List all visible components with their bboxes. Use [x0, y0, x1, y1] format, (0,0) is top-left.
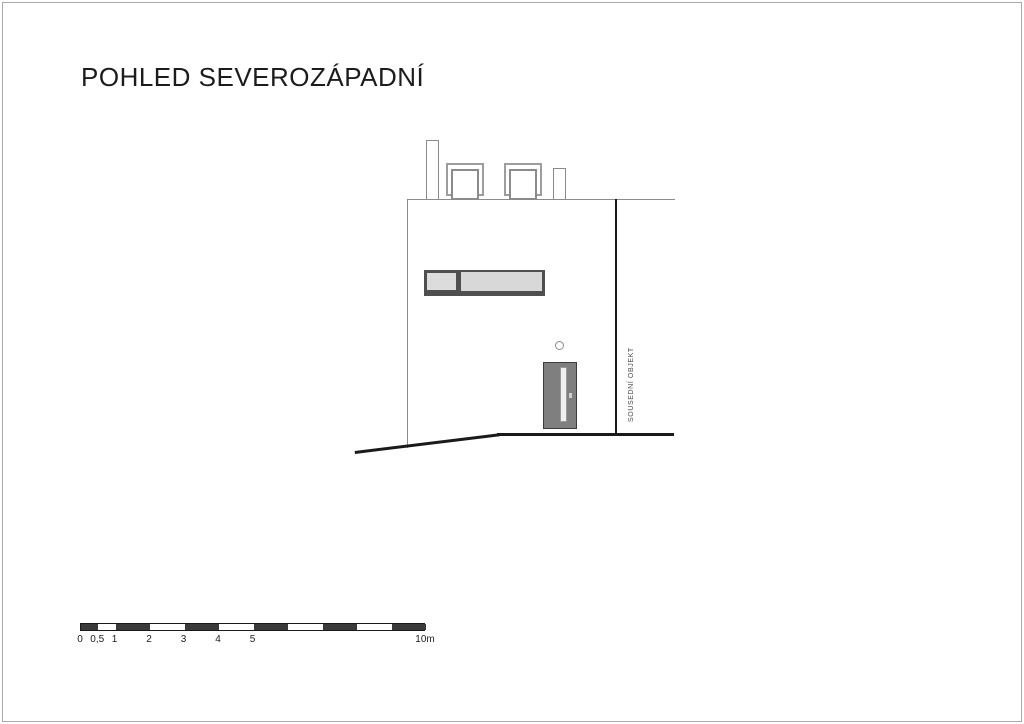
scale-bar-label: 5	[250, 634, 256, 645]
left-wall-line	[407, 199, 408, 448]
scale-bar-labels: 00,51234510m	[80, 634, 440, 648]
scale-bar-segment	[81, 624, 98, 630]
scale-bar-label: 3	[181, 634, 187, 645]
door-handle	[569, 393, 572, 398]
skylight-right-box	[509, 169, 537, 200]
scale-bar-label: 0	[77, 634, 83, 645]
scale-bar-segment	[116, 624, 151, 630]
scale-bar-segment	[392, 624, 427, 630]
chimney-right	[553, 168, 566, 200]
scale-bar-segment	[323, 624, 358, 630]
scale-bar-segment	[254, 624, 289, 630]
roof-line	[408, 199, 675, 200]
window-pane-left	[427, 273, 456, 290]
scale-bar-label: 1	[112, 634, 118, 645]
ground-line-sloped	[355, 433, 500, 454]
neighbor-boundary-line	[615, 199, 617, 434]
scale-bar-segment	[185, 624, 220, 630]
scale-bar-label: 2	[146, 634, 152, 645]
wall-lamp-circle	[555, 341, 564, 350]
door-glass-strip	[560, 367, 567, 422]
ground-line-horizontal	[497, 433, 674, 436]
skylight-left-box	[451, 169, 479, 200]
chimney-left	[426, 140, 439, 200]
scale-bar-label: 10m	[415, 634, 434, 645]
entrance-door	[543, 362, 577, 429]
sheet-border	[2, 2, 1022, 722]
scale-bar-label: 0,5	[90, 634, 104, 645]
strip-window	[424, 270, 545, 296]
scale-bar-label: 4	[215, 634, 221, 645]
scale-bar	[80, 623, 425, 631]
drawing-sheet: POHLED SEVEROZÁPADNÍ SOUSEDNÍ OBJEKT 00,	[0, 0, 1024, 724]
neighbor-object-label: SOUSEDNÍ OBJEKT	[628, 350, 638, 422]
window-pane-right	[461, 272, 542, 291]
drawing-title: POHLED SEVEROZÁPADNÍ	[81, 62, 424, 93]
